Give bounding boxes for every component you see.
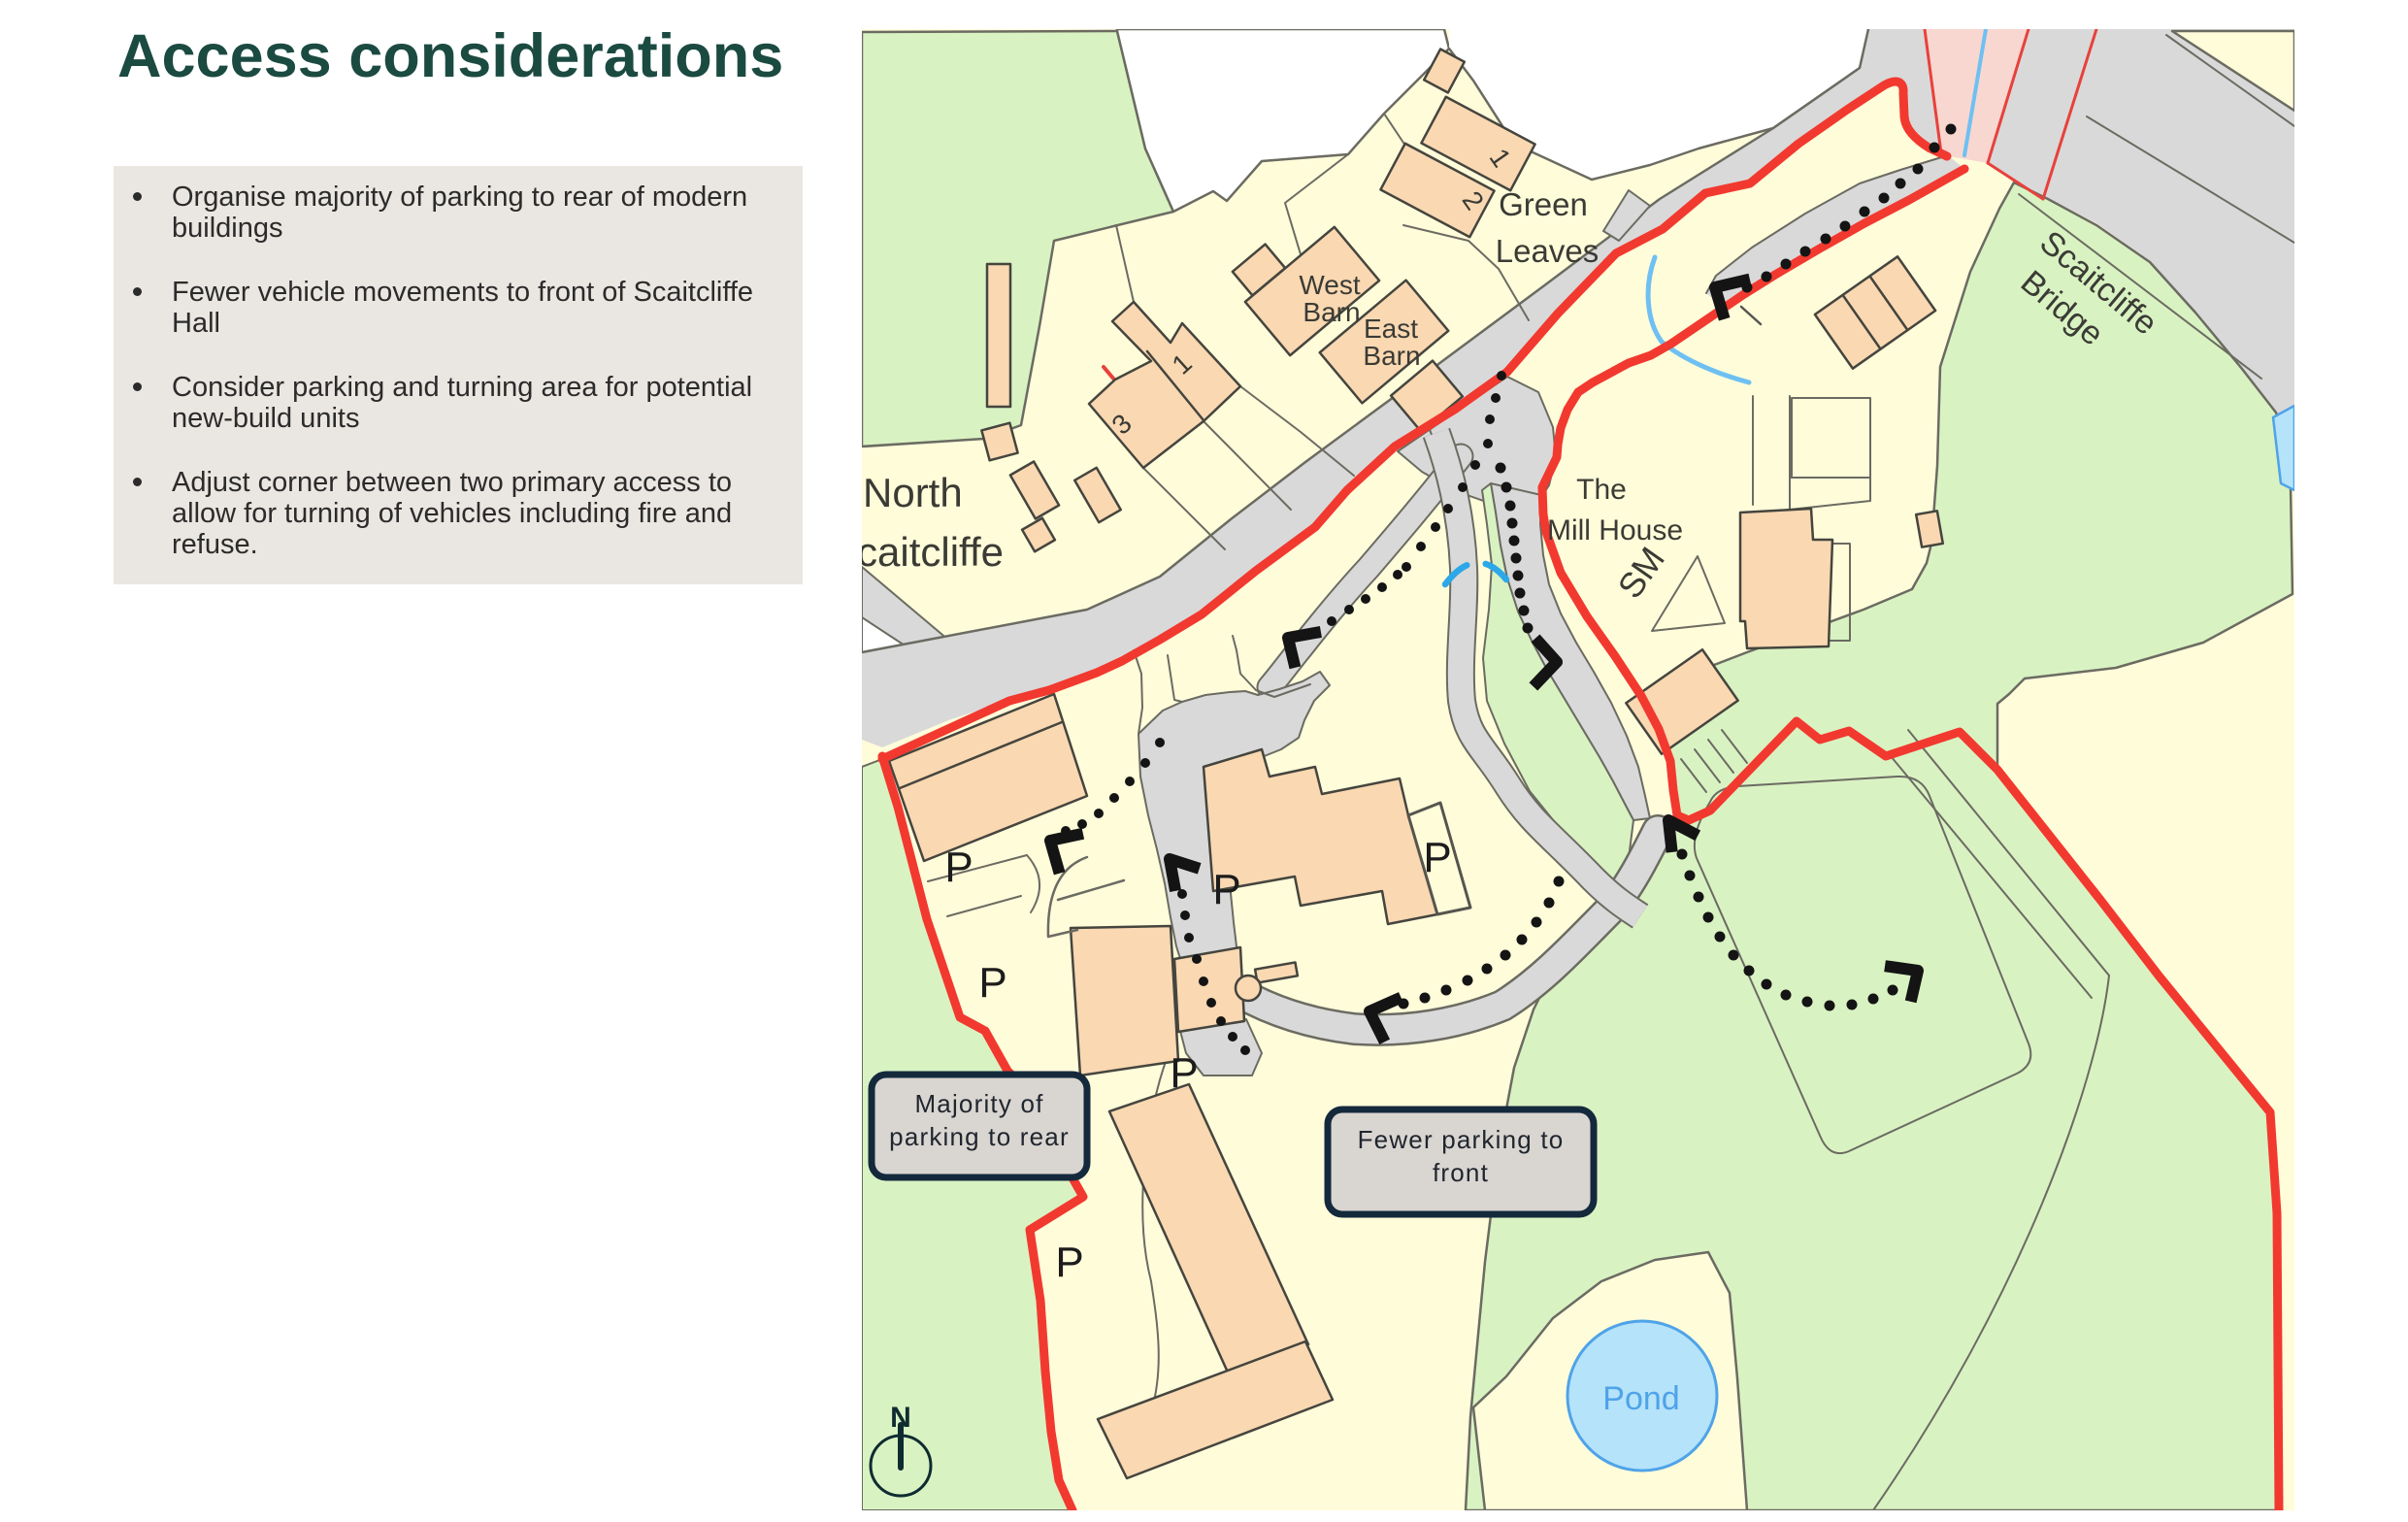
svg-text:Pond: Pond [1602,1380,1679,1417]
svg-text:The: The [1576,474,1627,506]
svg-text:P: P [944,844,973,891]
svg-text:front: front [1433,1158,1489,1187]
svg-text:Leaves: Leaves [1496,233,1599,269]
svg-text:parking to rear: parking to rear [889,1122,1070,1151]
svg-text:Barn: Barn [1303,297,1360,327]
svg-text:North: North [863,470,963,515]
svg-text:Barn: Barn [1363,341,1420,371]
svg-text:P: P [1055,1239,1083,1286]
svg-text:West: West [1299,270,1360,300]
svg-text:Mill House: Mill House [1547,514,1683,546]
svg-text:East: East [1364,314,1418,344]
svg-text:P: P [978,959,1006,1007]
svg-text:P: P [1170,1049,1198,1097]
svg-text:P: P [1423,834,1451,881]
svg-text:Green: Green [1499,186,1588,222]
svg-text:Majority of: Majority of [914,1089,1043,1118]
svg-text:N: N [890,1402,911,1434]
svg-text:Scaitcliffe: Scaitcliffe [862,529,1004,575]
svg-text:P: P [1212,866,1240,913]
svg-text:Fewer parking to: Fewer parking to [1358,1125,1565,1154]
